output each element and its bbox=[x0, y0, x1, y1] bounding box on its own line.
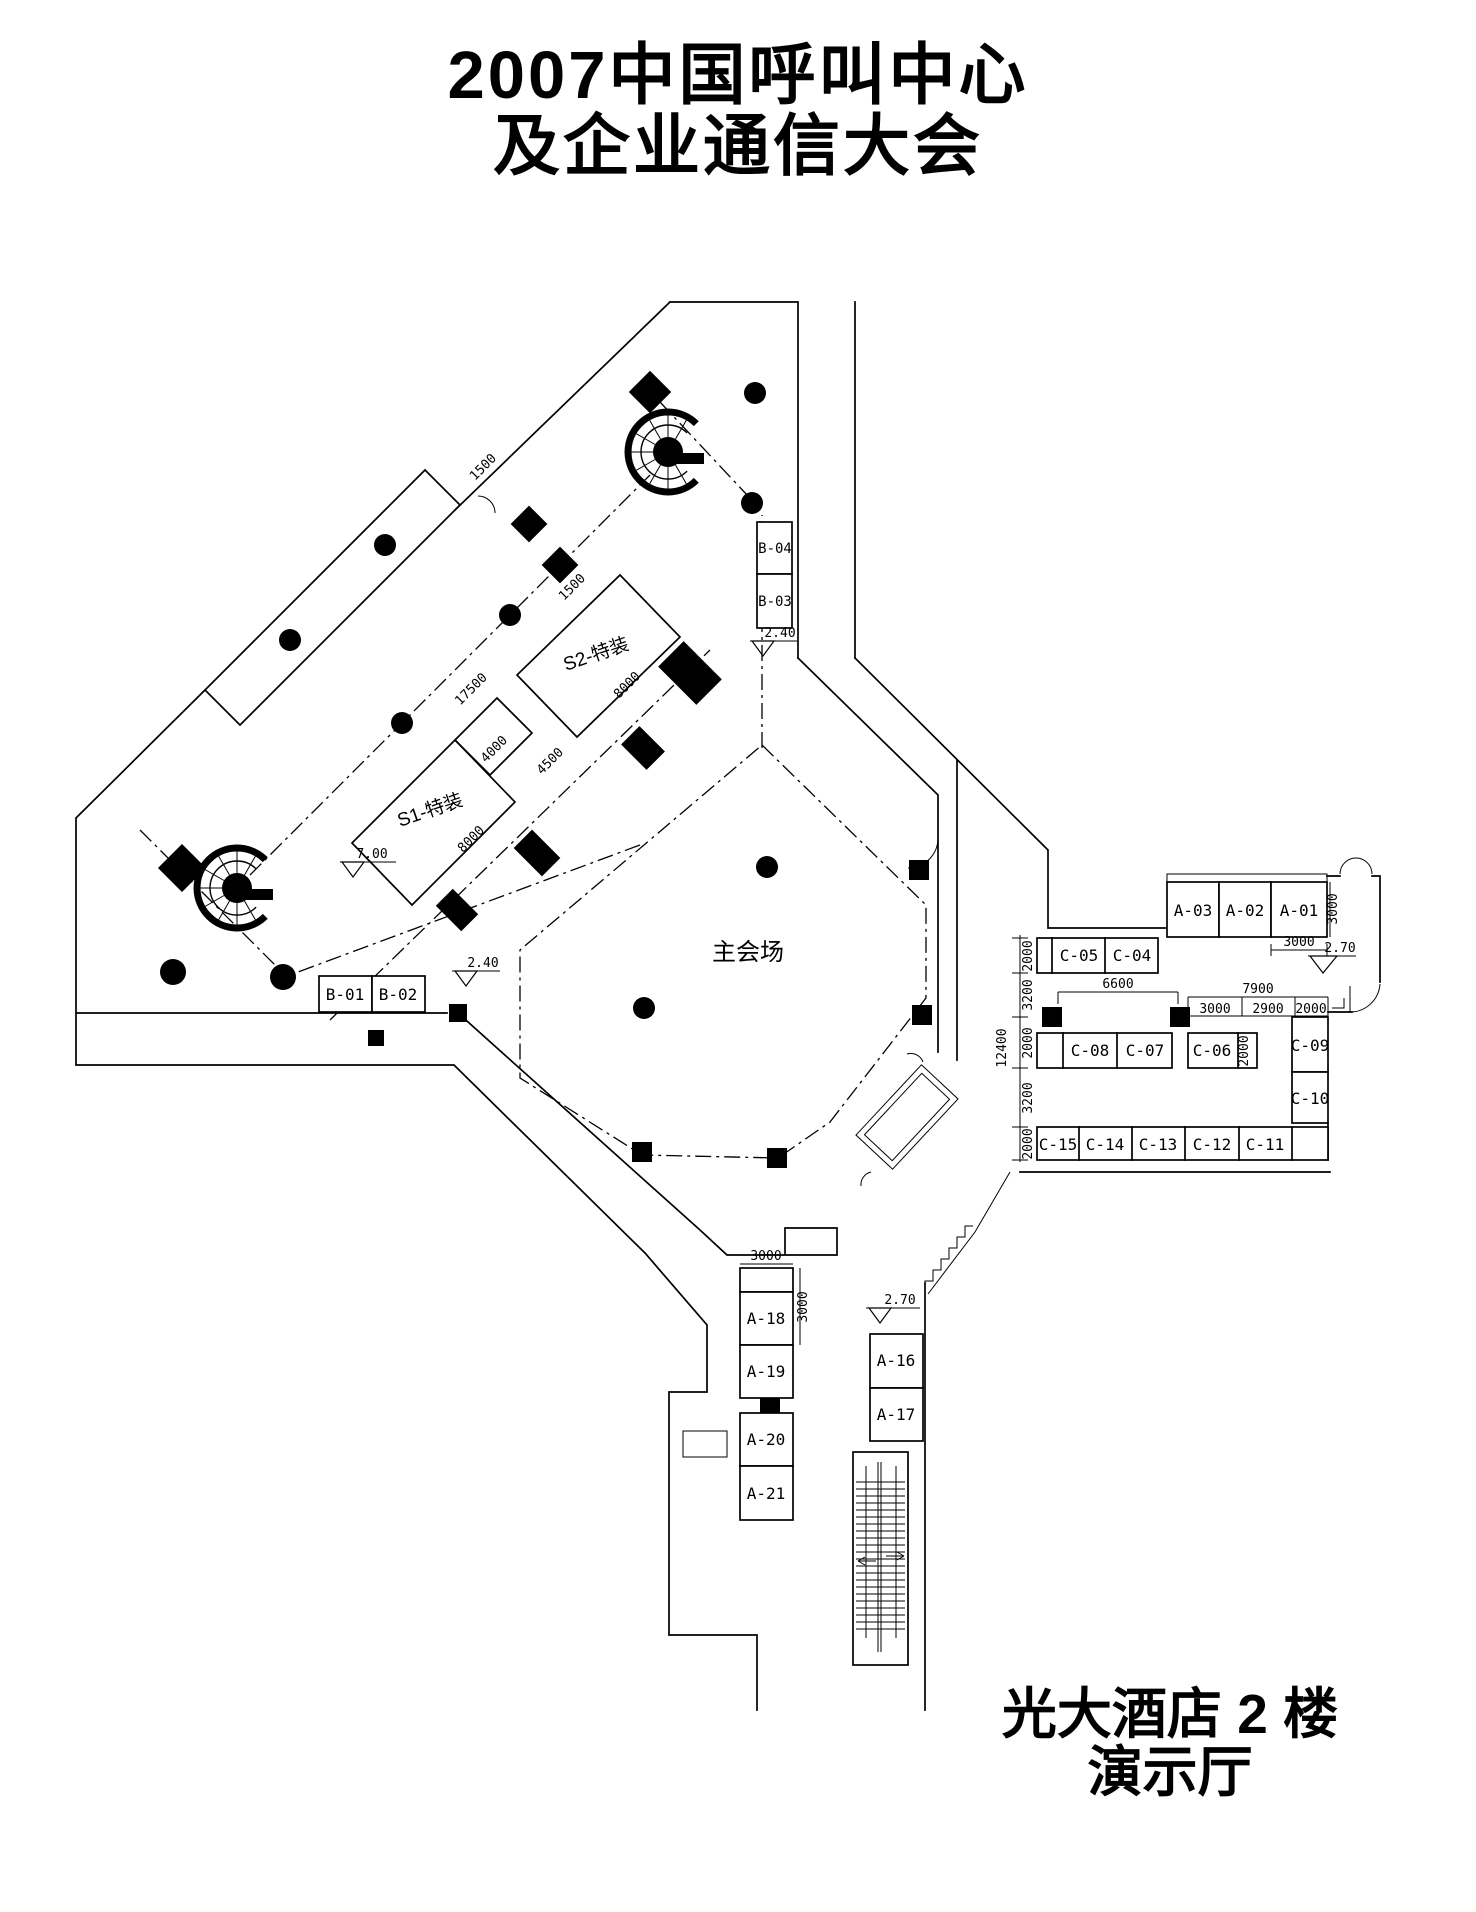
dim-8000-s2: 8000 bbox=[611, 669, 644, 702]
dim-sub-3000: 3000 bbox=[1199, 1002, 1230, 1017]
dim-17500: 17500 bbox=[452, 670, 490, 708]
booths-a-row: A-03 A-02 A-01 3000 3000 bbox=[1167, 874, 1341, 956]
booth-label-c07: C-07 bbox=[1126, 1041, 1165, 1060]
svg-text:2.40: 2.40 bbox=[764, 626, 795, 641]
dim-c-seg: 2000 bbox=[1021, 1027, 1036, 1058]
booth-label-c06: C-06 bbox=[1193, 1041, 1232, 1060]
area-s2-label: S2-特装 bbox=[561, 633, 632, 676]
booth-label-b01: B-01 bbox=[326, 985, 365, 1004]
level-marker-240-b02: 2.40 bbox=[452, 956, 500, 986]
dim-7900: 7900 bbox=[1242, 982, 1273, 997]
booth-label-b02: B-02 bbox=[379, 985, 418, 1004]
escalator bbox=[853, 1452, 908, 1665]
booth-label-c04: C-04 bbox=[1113, 946, 1152, 965]
dim-a18-depth: 3000 bbox=[796, 1291, 811, 1322]
booth-label-a21: A-21 bbox=[747, 1484, 786, 1503]
level-marker-700: 7.00 bbox=[340, 847, 396, 877]
column-squares bbox=[158, 371, 1190, 1416]
svg-text:7.00: 7.00 bbox=[356, 847, 387, 862]
svg-text:2.70: 2.70 bbox=[884, 1293, 915, 1308]
dim-a18-width: 3000 bbox=[750, 1249, 781, 1264]
main-hall-label: 主会场 bbox=[712, 939, 784, 966]
spiral-stair-icon bbox=[197, 848, 273, 928]
dim-c-seg: 3200 bbox=[1021, 1082, 1036, 1113]
booth-label-c12: C-12 bbox=[1193, 1135, 1232, 1154]
booth-label-c15: C-15 bbox=[1039, 1135, 1078, 1154]
booths-b-left: B-01 B-02 bbox=[319, 976, 425, 1012]
level-marker-270-a16: 2.70 bbox=[866, 1293, 920, 1323]
level-marker-270-a01: 2.70 bbox=[1308, 941, 1356, 973]
dim-sub-2000: 2000 bbox=[1295, 1002, 1326, 1017]
booth-label-a19: A-19 bbox=[747, 1362, 786, 1381]
booth-label-c14: C-14 bbox=[1086, 1135, 1125, 1154]
dim-6600: 6600 bbox=[1102, 977, 1133, 992]
spiral-stair-icon bbox=[628, 412, 704, 492]
area-s1[interactable] bbox=[352, 740, 515, 905]
level-marker-240-b03: 2.40 bbox=[750, 626, 797, 656]
outer-walls bbox=[76, 302, 1380, 1710]
floor-plan-page: 2007中国呼叫中心 及企业通信大会 bbox=[0, 0, 1476, 1912]
dim-a01-depth: 3000 bbox=[1326, 893, 1341, 924]
booth-label-c10: C-10 bbox=[1291, 1089, 1330, 1108]
booth-label-a17: A-17 bbox=[877, 1405, 916, 1424]
dim-c-seg: 3200 bbox=[1021, 979, 1036, 1010]
caption-line-1: 光大酒店 2 楼 bbox=[920, 1686, 1420, 1744]
service-box bbox=[683, 1431, 727, 1457]
dim-4500: 4500 bbox=[534, 745, 567, 778]
floor-plan-drawing: S2-特装 S1-特装 主会场 bbox=[0, 0, 1476, 1912]
caption-line-2: 演示厅 bbox=[920, 1744, 1420, 1802]
location-caption: 光大酒店 2 楼 演示厅 bbox=[920, 1686, 1420, 1802]
dim-a01-width: 3000 bbox=[1283, 935, 1314, 950]
booth-label-c13: C-13 bbox=[1139, 1135, 1178, 1154]
dim-8000-s1: 8000 bbox=[455, 823, 488, 856]
c-cluster: 12400 2000 3200 2000 3200 2000 C-05 C-04… bbox=[995, 935, 1344, 1162]
booth-label-a18: A-18 bbox=[747, 1309, 786, 1328]
dim-c-seg: 2000 bbox=[1021, 940, 1036, 971]
booth-label-a01: A-01 bbox=[1280, 901, 1319, 920]
booth-label-b03: B-03 bbox=[758, 594, 792, 610]
area-s1-annex bbox=[455, 698, 532, 775]
dim-c-seg: 2000 bbox=[1021, 1128, 1036, 1159]
booth-label-a02: A-02 bbox=[1226, 901, 1265, 920]
dim-c-total: 12400 bbox=[995, 1028, 1010, 1067]
dim-sub-2900: 2900 bbox=[1252, 1002, 1283, 1017]
booth-label-c08: C-08 bbox=[1071, 1041, 1110, 1060]
booth-label-a03: A-03 bbox=[1174, 901, 1213, 920]
booth-label-a16: A-16 bbox=[877, 1351, 916, 1370]
wing-outline bbox=[205, 470, 460, 725]
booth-label-c11: C-11 bbox=[1246, 1135, 1285, 1154]
dim-4000: 4000 bbox=[478, 733, 511, 766]
booths-a-east: A-16 A-17 bbox=[870, 1334, 923, 1441]
dim-1500: 1500 bbox=[467, 451, 500, 484]
svg-text:2.40: 2.40 bbox=[467, 956, 498, 971]
booth-label-c09: C-09 bbox=[1291, 1036, 1330, 1055]
booths-a-south: 3000 A-18 A-19 A-20 A-21 3000 bbox=[683, 1249, 811, 1520]
svg-text:2.70: 2.70 bbox=[1324, 941, 1355, 956]
booth-label-b04: B-04 bbox=[758, 541, 792, 557]
booths-b-top: B-04 B-03 bbox=[757, 522, 792, 628]
dim-c06: 2000 bbox=[1237, 1035, 1252, 1066]
booth-label-a20: A-20 bbox=[747, 1430, 786, 1449]
staircase bbox=[925, 1172, 1010, 1294]
level-markers: 7.00 2.40 2.40 2.70 2.70 bbox=[340, 626, 1356, 1323]
booth-label-c05: C-05 bbox=[1060, 946, 1099, 965]
stage-structure bbox=[856, 1053, 958, 1186]
area-s1-label: S1-特装 bbox=[395, 789, 466, 832]
